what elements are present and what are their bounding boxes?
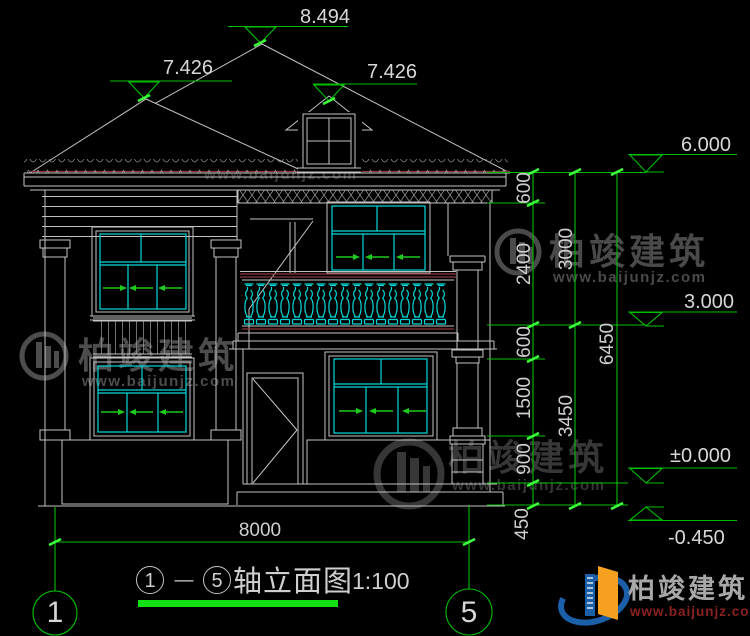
title-axis-start: 1 <box>144 570 155 592</box>
level-ridge-label: 8.494 <box>300 6 350 28</box>
title-scale: 1:100 <box>352 568 410 594</box>
dim-3450: 3450 <box>556 395 577 437</box>
dim-600-mid: 600 <box>514 326 535 358</box>
axis-bubble-5-label: 5 <box>461 596 478 629</box>
footer-site: www.baijunjz.com <box>629 604 750 619</box>
title-name: 轴立面图 <box>233 565 353 598</box>
logo-building-orange <box>598 566 618 620</box>
dim-1500: 1500 <box>514 377 535 419</box>
logo-building-blue <box>585 574 595 616</box>
dim-8000: 8000 <box>239 520 281 541</box>
logo-building-windows <box>587 578 593 608</box>
title-underline <box>138 600 338 607</box>
footer-brand: 柏竣建筑 <box>628 573 748 604</box>
level-floor2-label: 3.000 <box>684 291 734 313</box>
dim-450: 450 <box>512 508 533 540</box>
level-ground-label: ±0.000 <box>670 445 731 467</box>
eave-tile-edge <box>24 159 508 173</box>
title-dash: — <box>175 570 194 591</box>
title-axis-end: 5 <box>211 570 222 592</box>
elevation-drawing: 柏竣建筑 www.baijunjz.com 柏竣建筑 www.baijunjz.… <box>0 0 750 636</box>
axis-bubble-1-label: 1 <box>47 596 64 629</box>
dim-2400: 2400 <box>514 243 535 285</box>
dim-3000: 3000 <box>556 228 577 270</box>
watermark-site: www.baijunjz.com <box>81 373 235 390</box>
level-hip-right-label: 7.426 <box>367 61 417 83</box>
level-eave-label: 6.000 <box>681 134 731 156</box>
dim-6450: 6450 <box>597 323 618 365</box>
level-grade-label: -0.450 <box>668 527 725 549</box>
frieze-hatch-band <box>238 190 492 203</box>
cad-elevation-screenshot: 柏竣建筑 www.baijunjz.com 柏竣建筑 www.baijunjz.… <box>0 0 750 636</box>
slat-railing-panel <box>93 318 192 357</box>
level-hip-left-label: 7.426 <box>163 57 213 79</box>
dim-900: 900 <box>514 443 535 475</box>
dim-600-top: 600 <box>514 172 535 204</box>
